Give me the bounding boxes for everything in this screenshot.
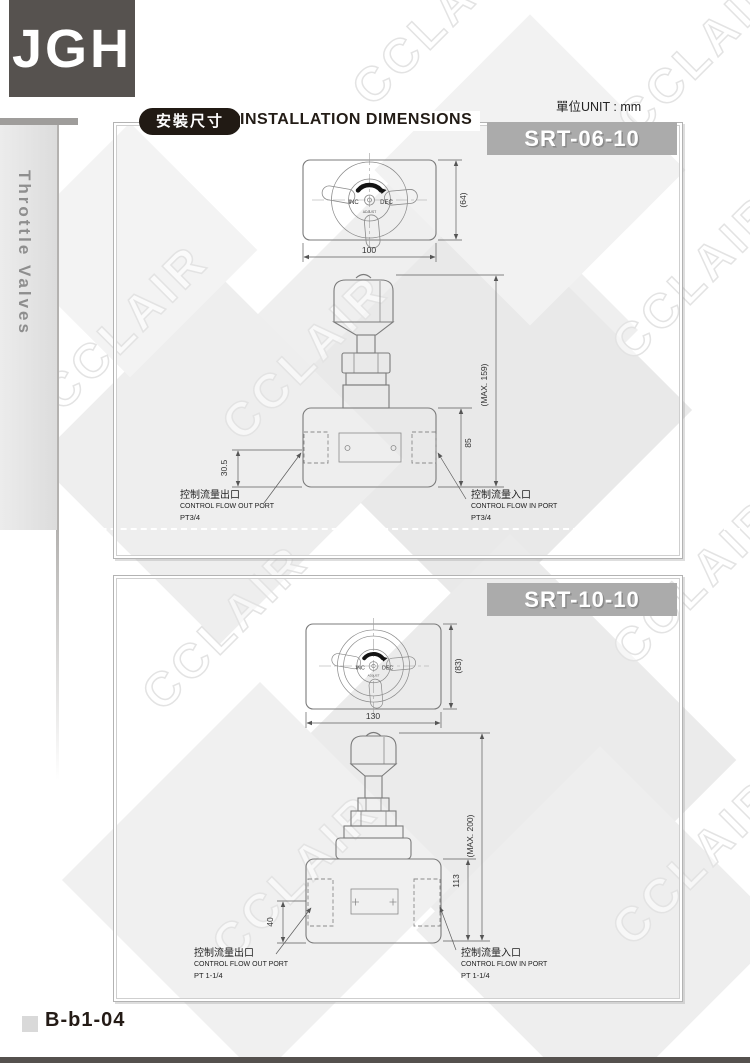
top-view-dimensions: (83) 130: [306, 624, 463, 728]
top-view-dimensions: (64) 100: [303, 160, 468, 262]
out-port-label: 控制流量出口 CONTROL FLOW OUT PORT PT 1-1/4: [194, 946, 289, 980]
front-view: (MAX. 200) 113 40: [265, 733, 490, 955]
in-port-label: 控制流量入口 CONTROL FLOW IN PORT PT3/4: [471, 488, 558, 522]
model-label: SRT-10-10: [524, 587, 639, 613]
knob-sub-label: ADJUST: [368, 674, 380, 678]
in-port-thread: PT 1-1/4: [461, 971, 490, 980]
bottom-rule: [0, 1057, 750, 1063]
sidebar-tab-label: Throttle Valves: [14, 170, 34, 336]
knob-inc-label: INC: [356, 666, 365, 672]
model-badge-srt-10-10: SRT-10-10: [487, 583, 677, 616]
page-title: INSTALLATION DIMENSIONS: [240, 111, 480, 131]
dim-out-port-offset: 30.5: [219, 459, 229, 476]
drawing-panel-srt-10-10: SRT-10-10: [113, 575, 683, 1002]
model-label: SRT-06-10: [524, 126, 639, 152]
knob-sub-label: ADJUST: [363, 210, 377, 214]
dim-height: (64): [458, 192, 468, 207]
technical-drawing-srt-06-10: INC DEC ADJUST (64) 100: [114, 123, 680, 555]
front-view-dimensions: (MAX. 159) 85 30.5: [219, 275, 504, 503]
section-badge: 安裝尺寸: [139, 108, 241, 135]
knob-dec-label: DEC: [380, 200, 393, 206]
in-port-label: 控制流量入口 CONTROL FLOW IN PORT PT 1-1/4: [461, 946, 548, 980]
front-view-dimensions: (MAX. 200) 113 40: [265, 733, 490, 954]
top-view: INC DEC ADJUST (64) 100: [303, 153, 468, 262]
front-view: (MAX. 159) 85 30.5: [219, 275, 504, 504]
drawing-panel-srt-06-10: SRT-06-10: [113, 122, 683, 559]
in-port-zh: 控制流量入口: [461, 946, 521, 959]
dim-width: 100: [362, 245, 376, 255]
in-port-thread: PT3/4: [471, 513, 491, 522]
brand-logo-block: JGH: [9, 0, 135, 97]
out-port-zh: 控制流量出口: [194, 946, 254, 959]
dim-port-height: 113: [451, 874, 461, 888]
technical-drawing-srt-10-10: INC DEC ADJUST (83) 130: [114, 576, 680, 999]
knob-dec-label: DEC: [382, 666, 393, 672]
out-port-label: 控制流量出口 CONTROL FLOW OUT PORT PT3/4: [180, 488, 275, 522]
in-port-en: CONTROL FLOW IN PORT: [461, 961, 548, 968]
in-port-zh: 控制流量入口: [471, 488, 531, 501]
dim-max-height: (MAX. 159): [479, 363, 489, 406]
dim-width: 130: [366, 711, 380, 721]
out-port-thread: PT 1-1/4: [194, 971, 223, 980]
model-badge-srt-06-10: SRT-06-10: [487, 122, 677, 155]
out-port-zh: 控制流量出口: [180, 488, 240, 501]
brand-logo-text: JGH: [12, 18, 132, 80]
catalog-page: CCLAIR CCLAIR CCLAIR CCLAIR CCLAIR CCLAI…: [0, 0, 750, 1063]
out-port-en: CONTROL FLOW OUT PORT: [194, 961, 289, 968]
dim-max-height: (MAX. 200): [465, 814, 475, 857]
dim-height: (83): [453, 658, 463, 673]
knob-inc-label: INC: [348, 200, 359, 206]
in-port-en: CONTROL FLOW IN PORT: [471, 503, 558, 510]
sidebar-tab-throttle-valves: Throttle Valves: [0, 125, 59, 530]
dim-port-height: 85: [463, 438, 473, 448]
out-port-en: CONTROL FLOW OUT PORT: [180, 503, 275, 510]
footer-bullet: [22, 1016, 38, 1032]
out-port-thread: PT3/4: [180, 513, 200, 522]
dim-out-port-offset: 40: [265, 917, 275, 927]
sidebar-top-rule: [0, 118, 78, 125]
top-view: INC DEC ADJUST (83) 130: [306, 618, 463, 728]
sidebar-rule: [56, 530, 59, 780]
page-code: B-b1-04: [45, 1009, 125, 1032]
unit-label: 單位UNIT : mm: [556, 96, 641, 115]
